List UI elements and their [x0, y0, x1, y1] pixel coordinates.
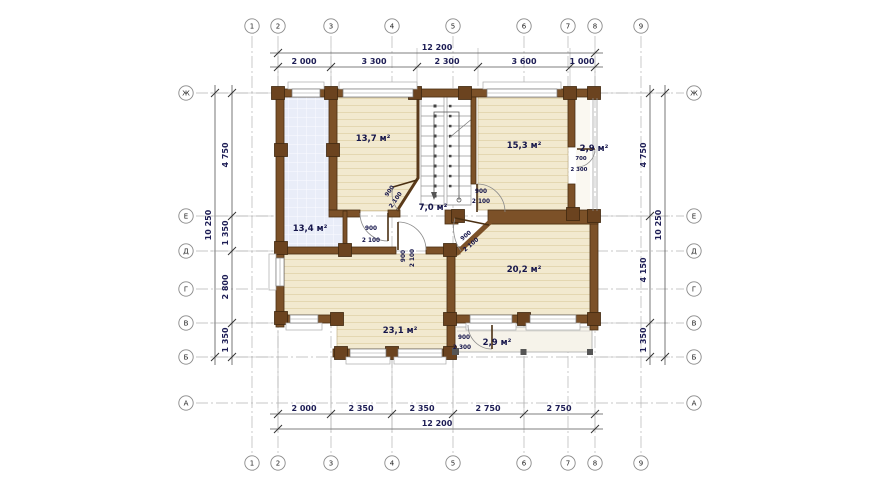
room-label-20-2: 20,2 м²: [507, 265, 542, 275]
axis-right-b: Б: [692, 354, 697, 362]
dim-bot-seg-2: 2 350: [348, 404, 373, 413]
dim-bot-seg-5: 2 750: [546, 404, 571, 413]
door7-height: 2 300: [453, 345, 471, 351]
axis-bottom-8: 8: [593, 460, 597, 468]
dim-top-seg-1: 2 000: [291, 57, 316, 66]
dim-top-seg-3: 2 300: [434, 57, 459, 66]
axis-right-g: Г: [692, 286, 696, 294]
wall-axis7-upper: [568, 97, 575, 147]
dim-top-seg-5: 1 000: [569, 57, 594, 66]
dim-right-seg-1: 4 750: [639, 142, 648, 167]
room-label-15-3: 15,3 м²: [507, 141, 542, 151]
dim-left-total: 10 250: [204, 209, 213, 240]
axis-top-1: 1: [250, 23, 254, 31]
stairwell: [421, 97, 473, 205]
door4-width: 900: [365, 226, 377, 232]
wall-axis5: [447, 247, 455, 355]
dim-top-total: 12 200: [422, 43, 453, 52]
axis-right-e: Е: [692, 213, 696, 221]
dim-right-seg-2: 4 150: [639, 257, 648, 282]
axis-top-2: 2: [276, 23, 280, 31]
axis-top-9: 9: [639, 23, 643, 31]
axis-bottom-9: 9: [639, 460, 643, 468]
dim-bot-seg-1: 2 000: [291, 404, 316, 413]
axis-right-d: Д: [691, 248, 697, 256]
axis-bottom-7: 7: [566, 460, 570, 468]
floor-plan-page: 12 200 2 000 3 300 2 300 3 600 1 000 2 0…: [0, 0, 880, 492]
room-label-13-4: 13,4 м²: [293, 224, 328, 234]
axis-left-b: Б: [184, 354, 189, 362]
wall-E-thick: [488, 210, 598, 224]
axis-right-a: А: [692, 400, 697, 408]
door3-height: 2 300: [571, 167, 588, 173]
door7-width: 900: [458, 335, 470, 341]
room-13-7: [337, 97, 418, 211]
axis-top-6: 6: [522, 23, 527, 31]
axis-left-v: В: [184, 320, 189, 328]
axis-bottom-6: 6: [522, 460, 527, 468]
dim-right-total: 10 250: [654, 209, 663, 240]
axis-left-e: Е: [184, 213, 188, 221]
axis-top-5: 5: [451, 23, 455, 31]
axis-top-3: 3: [329, 23, 333, 31]
dim-bot-seg-4: 2 750: [475, 404, 500, 413]
door4-height: 2 100: [362, 238, 380, 244]
floor-plan-canvas: 12 200 2 000 3 300 2 300 3 600 1 000 2 0…: [0, 0, 880, 492]
door2-width: 900: [475, 189, 487, 195]
axis-bottom-1: 1: [250, 460, 254, 468]
room-15-3: [478, 97, 568, 210]
axis-bottom-2: 2: [276, 460, 280, 468]
dim-left-seg-3: 2 800: [221, 274, 230, 299]
axis-top-4: 4: [390, 23, 395, 31]
wall-left: [276, 89, 284, 327]
dim-top-seg-2: 3 300: [361, 57, 386, 66]
door5-height: 2 100: [410, 249, 416, 267]
wall-D-left: [276, 247, 396, 254]
room-label-2-9-bottom: 2,9 м²: [483, 338, 512, 348]
door3-width: 700: [575, 156, 587, 162]
room-balcony-2-9-right: [576, 97, 590, 213]
dim-bot-total: 12 200: [422, 419, 453, 428]
room-label-13-7: 13,7 м²: [356, 134, 391, 144]
dim-bot-seg-3: 2 350: [409, 404, 434, 413]
room-label-7-0: 7,0 м²: [419, 203, 448, 213]
dim-top-seg-4: 3 600: [511, 57, 536, 66]
axis-bottom-4: 4: [390, 460, 395, 468]
dim-left-seg-1: 4 750: [221, 142, 230, 167]
room-label-23-1: 23,1 м²: [383, 326, 418, 336]
axis-left-g: Г: [184, 286, 188, 294]
door5-width: 900: [401, 250, 407, 262]
dim-right-seg-3: 1 350: [639, 327, 648, 352]
axis-right-zh: Ж: [690, 90, 698, 98]
axis-bottom-3: 3: [329, 460, 333, 468]
axis-bottom-5: 5: [451, 460, 455, 468]
axis-left-d: Д: [183, 248, 189, 256]
dim-left-seg-2: 1 350: [221, 220, 230, 245]
axis-right-v: В: [692, 320, 697, 328]
axis-top-8: 8: [593, 23, 597, 31]
axis-left-zh: Ж: [182, 90, 190, 98]
wall-stair-right: [471, 97, 476, 184]
door2-height: 2 100: [472, 199, 490, 205]
dim-left-seg-4: 1 350: [221, 327, 230, 352]
axis-left-a: А: [184, 400, 189, 408]
room-label-2-9-right: 2,9 м²: [580, 144, 609, 154]
axis-top-7: 7: [566, 23, 570, 31]
